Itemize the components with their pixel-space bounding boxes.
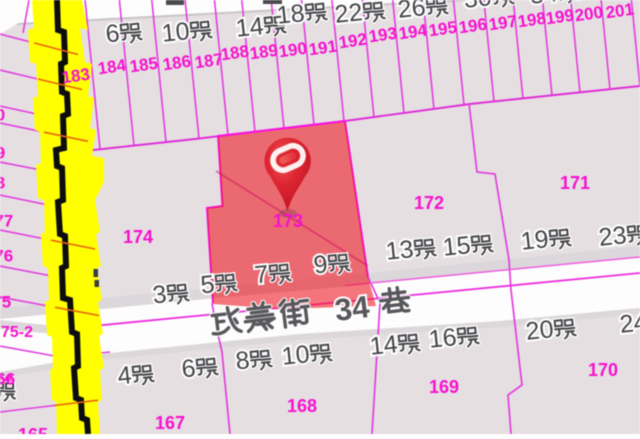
svg-text:196: 196	[457, 15, 488, 38]
svg-text:34: 34	[333, 289, 372, 328]
svg-text:174: 174	[123, 227, 153, 247]
svg-text:185: 185	[128, 54, 159, 77]
svg-text:167: 167	[155, 413, 185, 433]
svg-text:19: 19	[519, 225, 550, 256]
svg-text:165: 165	[18, 425, 48, 434]
svg-text:20: 20	[524, 315, 555, 346]
svg-text:169: 169	[429, 377, 459, 397]
svg-text:175: 175	[0, 292, 11, 311]
svg-text:18: 18	[275, 0, 306, 30]
svg-text:10: 10	[160, 17, 191, 48]
svg-text:22: 22	[333, 0, 364, 29]
svg-text:190: 190	[277, 39, 308, 62]
svg-text:14: 14	[234, 12, 265, 43]
svg-text:199: 199	[544, 6, 575, 29]
svg-text:14: 14	[368, 330, 399, 361]
svg-text:170: 170	[588, 360, 618, 380]
svg-text:194: 194	[397, 21, 428, 44]
svg-text:192: 192	[337, 30, 368, 53]
svg-text:191: 191	[307, 37, 338, 60]
svg-text:198: 198	[516, 9, 547, 32]
svg-text:24: 24	[618, 308, 640, 339]
svg-text:173: 173	[273, 211, 303, 231]
svg-text:193: 193	[367, 24, 398, 47]
svg-text:15: 15	[441, 231, 472, 262]
svg-text:26: 26	[396, 0, 427, 24]
svg-text:176: 176	[0, 246, 13, 265]
svg-text:168: 168	[287, 396, 317, 416]
svg-text:171: 171	[560, 173, 590, 193]
svg-text:177: 177	[0, 211, 13, 230]
svg-text:195: 195	[427, 18, 458, 41]
svg-text:23: 23	[597, 221, 628, 252]
svg-text:75-2: 75-2	[1, 324, 33, 341]
svg-text:172: 172	[414, 193, 444, 213]
svg-text:16: 16	[427, 323, 458, 354]
svg-text:189: 189	[248, 41, 279, 64]
svg-text:180: 180	[0, 105, 5, 124]
svg-text:183: 183	[60, 65, 91, 88]
svg-text:186: 186	[161, 52, 192, 75]
svg-text:184: 184	[96, 56, 127, 79]
svg-text:178: 178	[0, 173, 5, 192]
svg-text:166: 166	[0, 369, 15, 388]
svg-text:201: 201	[604, 0, 635, 22]
svg-text:13: 13	[384, 235, 415, 266]
svg-text:179: 179	[0, 143, 5, 162]
svg-text:188: 188	[219, 42, 250, 65]
svg-text:200: 200	[573, 3, 604, 26]
svg-text:10: 10	[280, 340, 311, 371]
svg-text:197: 197	[487, 12, 518, 35]
